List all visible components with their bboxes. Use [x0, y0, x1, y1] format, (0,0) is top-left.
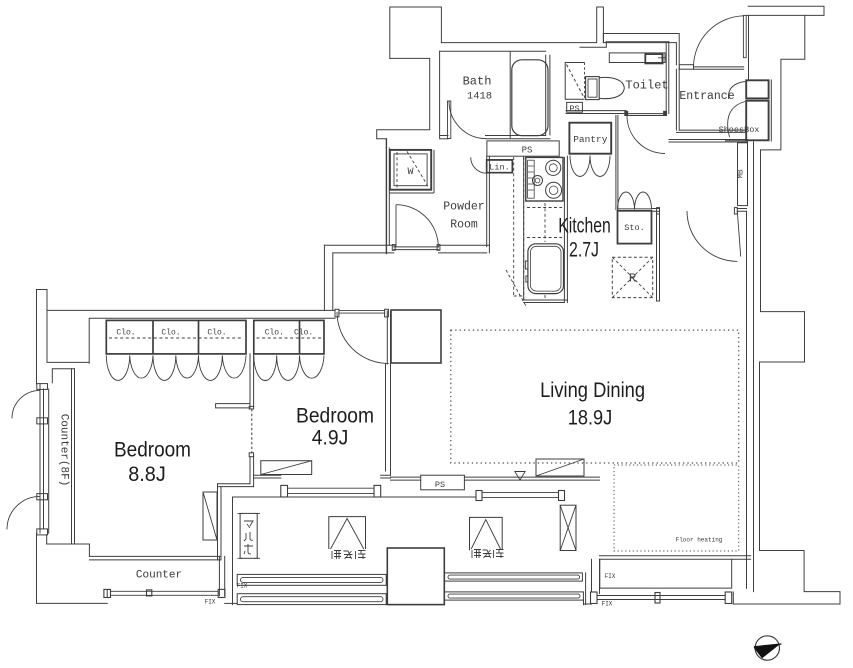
svg-text:Bedroom: Bedroom — [296, 405, 374, 428]
svg-text:Clo.: Clo. — [294, 329, 313, 338]
svg-text:MB: MB — [738, 169, 746, 179]
svg-text:Clo.: Clo. — [116, 329, 135, 338]
svg-text:18.9J: 18.9J — [568, 407, 613, 430]
svg-text:PS: PS — [569, 104, 579, 114]
svg-text:Entrance: Entrance — [679, 90, 734, 103]
svg-text:Counter: Counter — [136, 569, 182, 581]
svg-text:8.8J: 8.8J — [128, 463, 166, 486]
svg-text:Clo.: Clo. — [207, 329, 226, 338]
svg-text:Bedroom: Bedroom — [114, 439, 191, 462]
svg-text:Room: Room — [450, 219, 478, 232]
svg-text:FIX: FIX — [602, 601, 613, 608]
svg-text:PS: PS — [522, 145, 533, 155]
svg-text:Clo.: Clo. — [161, 329, 180, 338]
svg-text:PS: PS — [435, 480, 445, 490]
svg-text:Bath: Bath — [463, 75, 492, 89]
svg-text:W: W — [407, 167, 413, 178]
svg-text:1418: 1418 — [467, 91, 492, 103]
svg-text:Pantry: Pantry — [573, 134, 608, 145]
svg-text:ShoesBox: ShoesBox — [719, 125, 760, 135]
svg-text:R: R — [629, 272, 636, 286]
svg-text:Powder: Powder — [443, 201, 484, 214]
svg-text:FIX: FIX — [605, 573, 616, 580]
svg-text:2.7J: 2.7J — [569, 239, 599, 262]
svg-text:Toilet: Toilet — [625, 79, 668, 93]
svg-text:Floor heating: Floor heating — [676, 537, 723, 544]
svg-text:FIX: FIX — [205, 599, 216, 606]
svg-text:Sto.: Sto. — [624, 223, 644, 233]
svg-text:Kitchen: Kitchen — [558, 215, 611, 238]
svg-text:Lin.: Lin. — [489, 163, 509, 173]
svg-text:4.9J: 4.9J — [312, 427, 349, 450]
svg-text:Counter(8F): Counter(8F) — [58, 414, 70, 487]
svg-text:Clo.: Clo. — [265, 329, 284, 338]
svg-text:Living Dining: Living Dining — [540, 379, 645, 402]
svg-text:FIX: FIX — [237, 583, 248, 590]
